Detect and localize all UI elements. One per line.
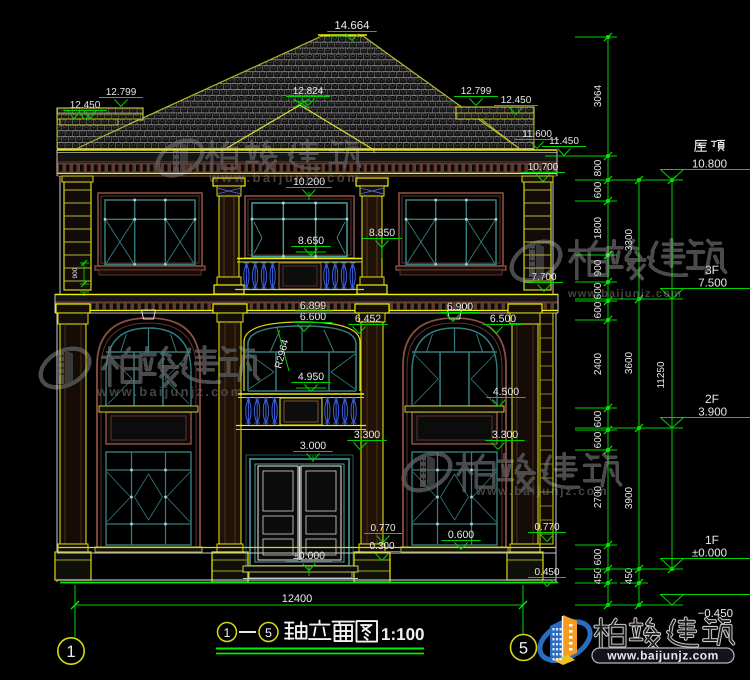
svg-text:1: 1 <box>66 643 75 661</box>
svg-text:www.baijunjz.com: www.baijunjz.com <box>96 384 244 399</box>
svg-text:6.452: 6.452 <box>355 313 381 325</box>
svg-text:600: 600 <box>593 410 604 427</box>
svg-text:5: 5 <box>519 640 528 658</box>
svg-text:4.950: 4.950 <box>298 371 324 383</box>
svg-text:www.baijunjz.com: www.baijunjz.com <box>606 649 719 663</box>
svg-text:±0.000: ±0.000 <box>692 548 727 560</box>
svg-text:14.664: 14.664 <box>334 20 370 32</box>
svg-text:12.450: 12.450 <box>70 100 101 111</box>
svg-text:11250: 11250 <box>656 361 667 389</box>
svg-text:0.770: 0.770 <box>370 523 395 534</box>
svg-text:450: 450 <box>593 567 604 584</box>
svg-text:10.800: 10.800 <box>692 159 727 171</box>
svg-text:www.baijunjz.com: www.baijunjz.com <box>567 288 682 300</box>
svg-text:600: 600 <box>593 548 604 565</box>
svg-text:0.300: 0.300 <box>369 541 394 552</box>
svg-text:www.baijunjz.com: www.baijunjz.com <box>208 170 361 185</box>
svg-text:1: 1 <box>224 626 231 640</box>
svg-text:12400: 12400 <box>282 593 313 605</box>
svg-text:10.700: 10.700 <box>528 162 559 173</box>
svg-text:0.600: 0.600 <box>448 529 474 541</box>
svg-text:1800: 1800 <box>593 216 604 239</box>
svg-text:4.500: 4.500 <box>493 386 519 398</box>
svg-text:600: 600 <box>593 181 604 198</box>
svg-text:6.900: 6.900 <box>447 301 473 313</box>
svg-text:1F: 1F <box>705 533 719 547</box>
svg-text:11.600: 11.600 <box>522 129 552 140</box>
svg-text:3600: 3600 <box>624 351 635 374</box>
svg-text:3900: 3900 <box>624 486 635 509</box>
svg-text:12.450: 12.450 <box>501 95 532 106</box>
svg-text:12.824: 12.824 <box>293 86 324 97</box>
svg-text:1:100: 1:100 <box>381 625 424 644</box>
svg-text:800: 800 <box>593 159 604 176</box>
svg-text:−0.450: −0.450 <box>698 608 734 620</box>
svg-text:www.baijunjz.com: www.baijunjz.com <box>475 484 608 498</box>
svg-text:2F: 2F <box>705 392 719 406</box>
svg-text:0.450: 0.450 <box>534 567 559 578</box>
svg-text:3.300: 3.300 <box>354 429 380 441</box>
svg-text:3.900: 3.900 <box>698 407 727 419</box>
svg-text:7.500: 7.500 <box>698 278 727 290</box>
svg-text:600: 600 <box>593 301 604 318</box>
svg-text:0.770: 0.770 <box>534 522 559 533</box>
svg-text:3064: 3064 <box>593 84 604 107</box>
svg-text:5: 5 <box>265 626 272 640</box>
svg-text:2400: 2400 <box>593 352 604 375</box>
svg-text:900: 900 <box>72 267 79 278</box>
svg-text:8.650: 8.650 <box>298 235 324 247</box>
svg-text:3.000: 3.000 <box>300 440 326 452</box>
svg-text:12.799: 12.799 <box>461 86 492 97</box>
svg-text:3.300: 3.300 <box>492 429 518 441</box>
svg-text:6.500: 6.500 <box>490 313 516 325</box>
svg-text:8.850: 8.850 <box>369 227 395 239</box>
svg-text:450: 450 <box>624 567 635 584</box>
svg-text:600: 600 <box>593 431 604 448</box>
svg-text:12.799: 12.799 <box>106 87 137 98</box>
svg-text:11.450: 11.450 <box>549 136 579 147</box>
svg-text:6.600: 6.600 <box>300 311 326 323</box>
svg-text:±0.000: ±0.000 <box>293 550 325 562</box>
